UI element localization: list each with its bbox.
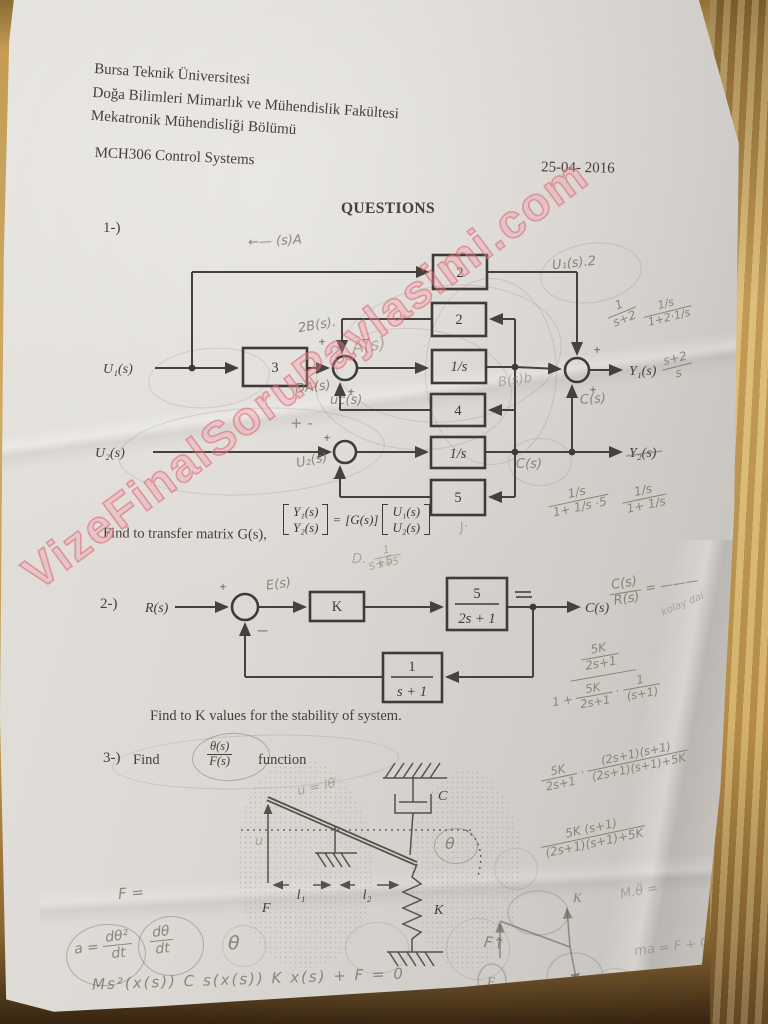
q2-input-r: R(s) <box>144 601 169 616</box>
q1-note-plusminus: + - <box>290 414 313 432</box>
svg-text:2: 2 <box>456 265 463 281</box>
q2-block-diagram: K 5 2s + 1 1 s + 1 R(s) C(s) + <box>95 570 615 720</box>
bracket-right <box>322 504 328 535</box>
exam-paper: Bursa Teknik Üniversitesi Doğa Bilimleri… <box>0 0 768 1024</box>
note-dtheta-dt: dθdt <box>148 923 175 958</box>
svg-text:1/s: 1/s <box>450 446 467 462</box>
sketch-k-label: K <box>572 890 583 905</box>
q3-note-u: u <box>255 834 263 849</box>
matrix-g: [G(s)] <box>345 512 378 528</box>
q1-note-top-arrow: ←— (s)A <box>248 233 303 251</box>
document-header: Bursa Teknik Üniversitesi Doğa Bilimleri… <box>90 58 401 150</box>
matrix-equals: = <box>332 512 341 528</box>
q1-note-cs-low: C(s) <box>516 457 542 472</box>
q2-block-labels: K 5 2s + 1 1 s + 1 <box>332 586 496 700</box>
q2-plus-sign: + <box>219 579 226 594</box>
matrix-u-column: U₁(s) U₂(s) <box>392 504 420 535</box>
exam-date: 25-04- 2016 <box>541 159 615 177</box>
q1-input-u1: U₁(s) <box>103 362 133 377</box>
q3-damper-label: C <box>438 789 448 804</box>
q1-sum-junction-3 <box>334 441 356 463</box>
q3-label: 3-) <box>103 750 121 767</box>
q3-force-label: F <box>261 901 271 916</box>
q1-output-y1: Y₁(s) <box>629 364 657 379</box>
q3-l2-label: l₂ <box>363 888 372 903</box>
bracket-right <box>424 504 430 535</box>
q3-spring <box>403 864 421 952</box>
q3-find-word: Find <box>133 752 160 769</box>
svg-text:K: K <box>332 599 343 615</box>
svg-text:4: 4 <box>454 403 462 419</box>
bracket-left <box>382 504 388 535</box>
q1-matrix-equation: Y₁(s) Y₂(s) = [G(s)] U₁(s) U₂(s) <box>283 504 430 535</box>
svg-text:2s + 1: 2s + 1 <box>458 611 495 627</box>
q2-margin-step2: 5K2s+1 · (2s+1)(s+1)(2s+1)(s+1)+5K <box>539 737 690 795</box>
q2-connection-lines <box>175 592 579 677</box>
note-accel: a = dθ²dt <box>72 927 133 966</box>
q1-sum-junction-2 <box>565 358 589 382</box>
svg-text:−: − <box>332 471 339 486</box>
q2-margin-result: 5K (s+1)(2s+1)(s+1)+5K <box>538 811 647 861</box>
svg-text:5: 5 <box>473 586 480 602</box>
svg-text:2: 2 <box>455 312 462 328</box>
q1-note-ucs: uc(s) <box>330 393 362 408</box>
q3-goal-fraction: θ(s) F(s) <box>207 740 232 769</box>
svg-text:+: + <box>318 334 325 349</box>
q2-blocks <box>232 578 507 702</box>
svg-text:1/s: 1/s <box>451 359 468 375</box>
q3-l1-label: l₁ <box>297 888 306 903</box>
q1-sum-junction-1 <box>333 356 357 380</box>
note-f-equals-left: F = <box>117 883 144 903</box>
q1-note-frac-s2-over-s: s+2s <box>659 349 695 384</box>
note-theta: θ <box>228 932 240 954</box>
svg-text:+: + <box>593 342 600 357</box>
questions-title: QUESTIONS <box>298 200 478 218</box>
svg-text:+: + <box>323 430 330 445</box>
sketch-labels: K C F <box>486 890 589 989</box>
q2-margin-word: kolay dal <box>660 591 706 619</box>
q2-find-text: Find to K values for the stability of sy… <box>150 708 402 725</box>
q2-branch-dot <box>530 604 537 611</box>
q2-sum-junction <box>232 594 258 620</box>
q3-note-theta: θ <box>445 834 455 853</box>
course-title: MCH306 Control Systems <box>94 145 255 169</box>
q2-output-c: C(s) <box>585 601 609 616</box>
svg-text:s + 1: s + 1 <box>397 684 427 700</box>
svg-text:1: 1 <box>408 659 415 675</box>
q3-spring-label: K <box>433 903 444 918</box>
matrix-y-column: Y₁(s) Y₂(s) <box>293 504 318 535</box>
q2-margin-transfer: C(s)R(s) = ——— kolay dal <box>607 565 706 621</box>
photo-scene: Bursa Teknik Üniversitesi Doğa Bilimleri… <box>0 0 768 1024</box>
q2-minus-sign: − <box>256 621 269 640</box>
q1-connection-lines <box>153 272 621 497</box>
q1-find-text: Find to transfer matrix G(s), <box>103 525 267 543</box>
q1-note-d-mark: D. <box>352 552 366 567</box>
bracket-left <box>283 504 289 535</box>
q1-input-u2: U₂(s) <box>95 446 125 461</box>
svg-text:3: 3 <box>271 360 278 376</box>
svg-text:5: 5 <box>454 490 461 506</box>
q1-note-cs-right: C(s) <box>580 391 607 408</box>
